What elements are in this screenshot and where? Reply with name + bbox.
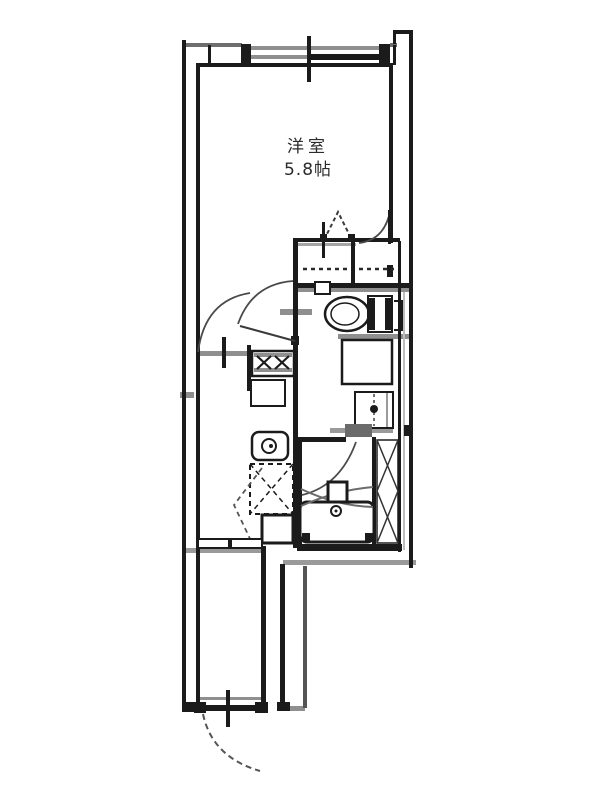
washroom: [342, 340, 393, 437]
corridor-separator: [198, 539, 262, 548]
kitchen-counter: [251, 380, 285, 406]
room-size: 5.8帖: [258, 159, 358, 182]
hall-doors: [198, 281, 295, 352]
floorplan-canvas: 洋室 5.8帖: [0, 0, 600, 800]
washbasin-faucet: [370, 405, 378, 413]
entrance: [197, 690, 260, 771]
vanity-counter: [342, 340, 392, 384]
bathroom: [296, 437, 376, 544]
entrance-door-arc: [203, 714, 260, 771]
hall-door-leaf: [240, 326, 295, 341]
room-name: 洋室: [258, 136, 358, 159]
pipe-space-shaft: [377, 440, 398, 543]
bath-faucet: [328, 482, 347, 502]
hall-door-arc: [238, 281, 293, 324]
kitchen: [234, 351, 294, 543]
room-label: 洋室 5.8帖: [258, 136, 358, 182]
storage-box: [262, 515, 293, 543]
floorplan-drawing: [0, 0, 600, 800]
closet-folding-door: [324, 212, 352, 240]
sliding-window: [241, 36, 390, 82]
bath-threshold: [345, 424, 372, 437]
